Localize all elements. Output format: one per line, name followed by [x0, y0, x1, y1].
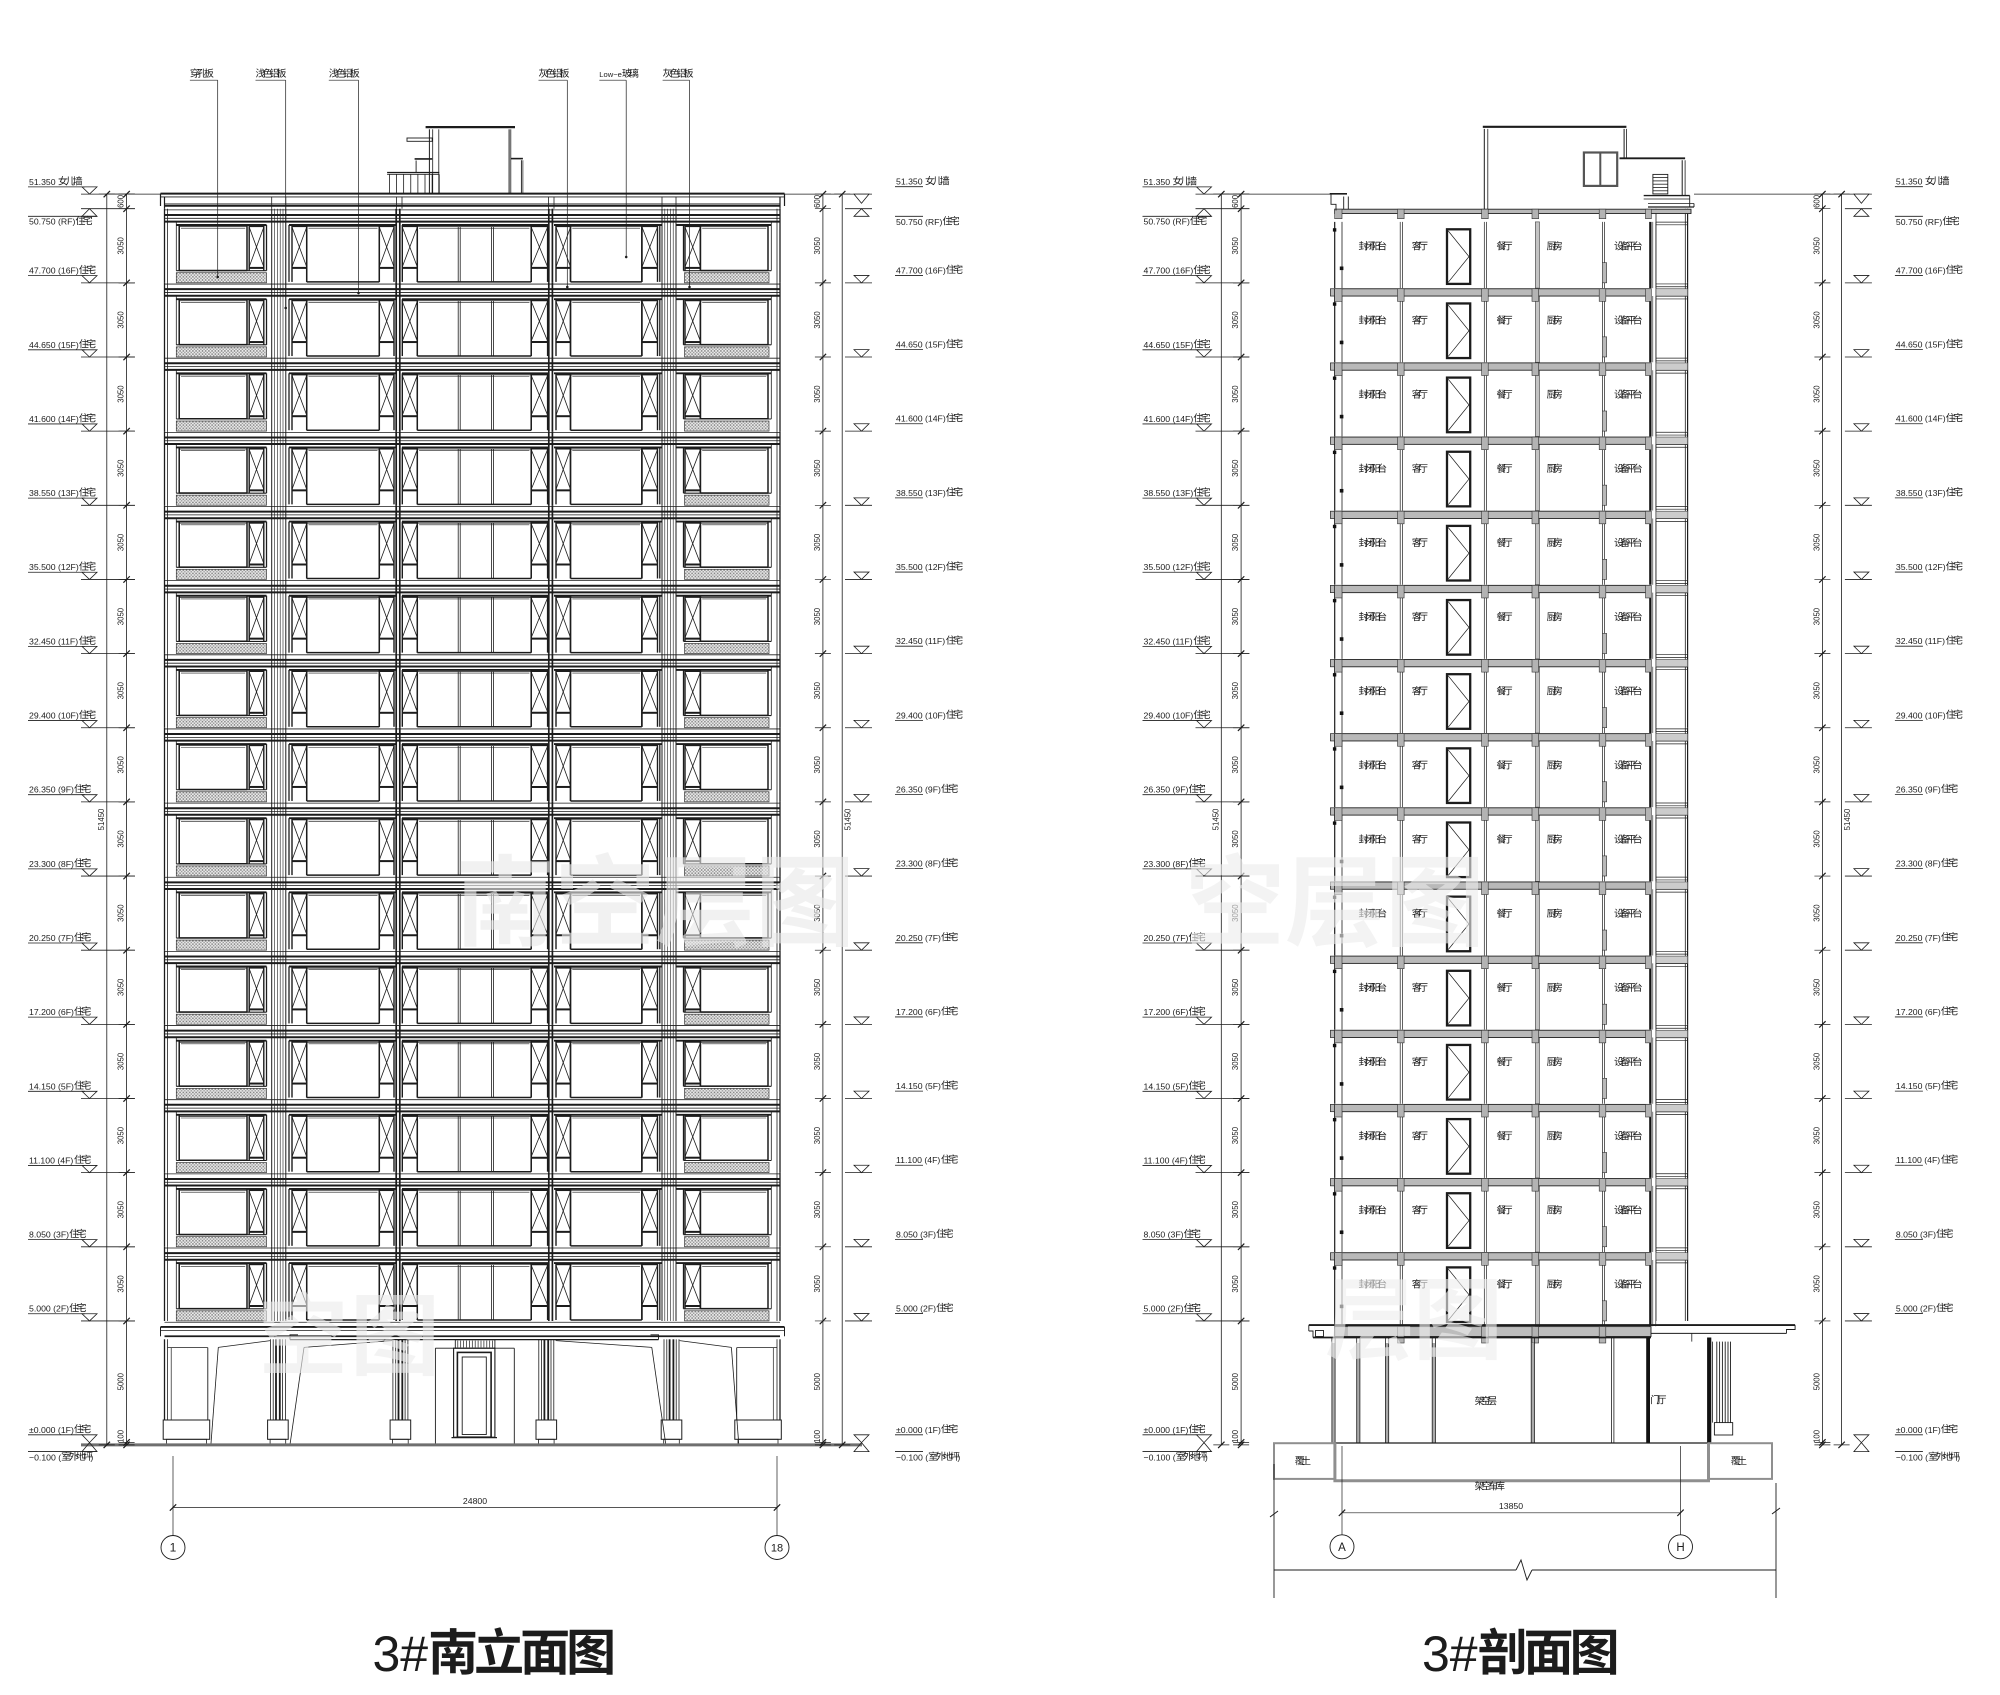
svg-text:3050: 3050 [1812, 459, 1821, 477]
svg-text:5000: 5000 [117, 1372, 126, 1390]
svg-text:600: 600 [1812, 194, 1821, 208]
svg-text:3050: 3050 [117, 385, 126, 403]
svg-text:14.150 (5F): 14.150 (5F) [1144, 1081, 1189, 1091]
svg-text:600: 600 [1231, 194, 1240, 208]
svg-text:3050: 3050 [813, 607, 822, 625]
svg-text:−0.100 (: −0.100 ( [1144, 1452, 1176, 1462]
svg-text:3050: 3050 [1812, 1200, 1821, 1218]
svg-text:3050: 3050 [117, 236, 126, 254]
svg-text:3050: 3050 [813, 1275, 822, 1293]
svg-text:3#: 3# [373, 1626, 429, 1682]
svg-text:17.200 (6F): 17.200 (6F) [29, 1007, 74, 1017]
svg-text:38.550 (13F): 38.550 (13F) [896, 488, 946, 498]
svg-text:3050: 3050 [1231, 236, 1240, 254]
svg-text:3050: 3050 [1231, 385, 1240, 403]
svg-text:5000: 5000 [1812, 1372, 1821, 1390]
svg-text:−0.100 (: −0.100 ( [1896, 1452, 1928, 1462]
svg-text:47.700 (16F): 47.700 (16F) [29, 266, 79, 276]
svg-text:±0.000 (1F): ±0.000 (1F) [1144, 1425, 1189, 1435]
svg-text:38.550 (13F): 38.550 (13F) [1896, 488, 1946, 498]
svg-text:44.650 (15F): 44.650 (15F) [29, 340, 79, 350]
svg-text:3050: 3050 [1812, 681, 1821, 699]
svg-text:3050: 3050 [1812, 607, 1821, 625]
svg-text:35.500 (12F): 35.500 (12F) [1896, 562, 1946, 572]
svg-text:11.100 (4F): 11.100 (4F) [896, 1155, 940, 1165]
svg-text:3050: 3050 [813, 978, 822, 996]
svg-text:): ) [90, 1452, 93, 1462]
svg-text:3050: 3050 [117, 904, 126, 922]
svg-text:3050: 3050 [1812, 236, 1821, 254]
svg-text:±0.000 (1F): ±0.000 (1F) [896, 1425, 941, 1435]
svg-text:3050: 3050 [117, 830, 126, 848]
svg-text:20.250 (7F): 20.250 (7F) [896, 933, 941, 943]
svg-text:32.450 (11F): 32.450 (11F) [1144, 636, 1193, 646]
svg-text:3050: 3050 [813, 1052, 822, 1070]
svg-text:±0.000 (1F): ±0.000 (1F) [1896, 1425, 1941, 1435]
svg-text:14.150 (5F): 14.150 (5F) [896, 1081, 941, 1091]
svg-text:50.750 (RF): 50.750 (RF) [1144, 217, 1190, 227]
svg-text:51.350: 51.350 [1896, 177, 1923, 187]
svg-text:3050: 3050 [117, 756, 126, 774]
svg-text:38.550 (13F): 38.550 (13F) [1144, 488, 1194, 498]
svg-text:3050: 3050 [1812, 533, 1821, 551]
svg-text:23.300 (8F): 23.300 (8F) [29, 859, 74, 869]
svg-text:3050: 3050 [1231, 681, 1240, 699]
svg-text:44.650 (15F): 44.650 (15F) [1144, 340, 1194, 350]
svg-text:51450: 51450 [1843, 808, 1852, 830]
svg-text:18: 18 [771, 1543, 783, 1555]
svg-text:50.750 (RF): 50.750 (RF) [29, 217, 75, 227]
svg-text:1: 1 [170, 1541, 177, 1555]
svg-text:29.400 (10F): 29.400 (10F) [1144, 711, 1194, 721]
svg-text:23.300 (8F): 23.300 (8F) [1144, 859, 1189, 869]
svg-text:13850: 13850 [1499, 1501, 1523, 1511]
svg-text:11.100 (4F): 11.100 (4F) [1896, 1155, 1940, 1165]
svg-text:3050: 3050 [117, 459, 126, 477]
svg-text:3050: 3050 [1812, 830, 1821, 848]
svg-text:3050: 3050 [117, 1126, 126, 1144]
svg-text:A: A [1338, 1542, 1346, 1554]
svg-text:26.350 (9F): 26.350 (9F) [896, 784, 941, 794]
svg-text:3050: 3050 [117, 311, 126, 329]
svg-text:5000: 5000 [813, 1372, 822, 1390]
svg-text:): ) [1957, 1452, 1960, 1462]
svg-text:17.200 (6F): 17.200 (6F) [1144, 1007, 1189, 1017]
svg-text:5.000 (2F): 5.000 (2F) [29, 1304, 69, 1314]
svg-text:3050: 3050 [117, 978, 126, 996]
svg-text:20.250 (7F): 20.250 (7F) [29, 933, 74, 943]
svg-text:50.750 (RF): 50.750 (RF) [1896, 217, 1942, 227]
svg-text:14.150 (5F): 14.150 (5F) [29, 1081, 74, 1091]
svg-text:3050: 3050 [1231, 756, 1240, 774]
svg-text:3050: 3050 [1231, 311, 1240, 329]
svg-text:3050: 3050 [813, 1200, 822, 1218]
svg-text:3050: 3050 [117, 1052, 126, 1070]
svg-text:3050: 3050 [1812, 385, 1821, 403]
svg-text:100: 100 [1231, 1429, 1240, 1443]
svg-text:100: 100 [813, 1429, 822, 1443]
svg-text:3050: 3050 [1812, 978, 1821, 996]
svg-text:100: 100 [1812, 1429, 1821, 1443]
svg-text:47.700 (16F): 47.700 (16F) [1896, 265, 1946, 275]
svg-text:41.600 (14F): 41.600 (14F) [1896, 414, 1946, 424]
svg-text:17.200 (6F): 17.200 (6F) [1896, 1007, 1941, 1017]
svg-text:41.600 (14F): 41.600 (14F) [1144, 414, 1194, 424]
svg-text:47.700 (16F): 47.700 (16F) [896, 265, 946, 275]
svg-text:3050: 3050 [813, 681, 822, 699]
svg-text:11.100 (4F): 11.100 (4F) [29, 1155, 73, 1165]
svg-text:5.000 (2F): 5.000 (2F) [896, 1304, 936, 1314]
svg-text:32.450 (11F): 32.450 (11F) [896, 636, 945, 646]
svg-text:8.050 (3F): 8.050 (3F) [1896, 1229, 1936, 1239]
svg-text:23.300 (8F): 23.300 (8F) [1896, 859, 1941, 869]
svg-text:24800: 24800 [463, 1496, 487, 1506]
svg-text:600: 600 [813, 194, 822, 208]
svg-text:26.350 (9F): 26.350 (9F) [1144, 785, 1189, 795]
svg-text:): ) [1205, 1452, 1208, 1462]
svg-text:3050: 3050 [813, 533, 822, 551]
svg-text:3050: 3050 [813, 459, 822, 477]
svg-text:20.250 (7F): 20.250 (7F) [1144, 933, 1189, 943]
svg-text:26.350 (9F): 26.350 (9F) [29, 785, 74, 795]
svg-text:17.200 (6F): 17.200 (6F) [896, 1007, 941, 1017]
svg-text:3050: 3050 [813, 236, 822, 254]
svg-text:20.250 (7F): 20.250 (7F) [1896, 933, 1941, 943]
svg-text:51450: 51450 [97, 808, 106, 830]
svg-text:3050: 3050 [813, 756, 822, 774]
svg-text:26.350 (9F): 26.350 (9F) [1896, 784, 1941, 794]
svg-text:3050: 3050 [117, 533, 126, 551]
svg-text:51450: 51450 [1211, 808, 1220, 830]
svg-text:51.350: 51.350 [1144, 177, 1171, 187]
svg-text:3050: 3050 [1812, 904, 1821, 922]
svg-text:3050: 3050 [1231, 1200, 1240, 1218]
svg-text:100: 100 [117, 1429, 126, 1443]
svg-text:44.650 (15F): 44.650 (15F) [896, 340, 946, 350]
svg-text:8.050 (3F): 8.050 (3F) [1144, 1230, 1184, 1240]
svg-text:50.750 (RF): 50.750 (RF) [896, 217, 942, 227]
svg-text:3050: 3050 [1231, 978, 1240, 996]
svg-text:3050: 3050 [1231, 607, 1240, 625]
svg-text:−0.100 (: −0.100 ( [29, 1452, 61, 1462]
svg-text:3050: 3050 [1231, 533, 1240, 551]
svg-text:3050: 3050 [1231, 830, 1240, 848]
svg-text:3050: 3050 [1812, 756, 1821, 774]
svg-text:Low−e: Low−e [599, 70, 622, 79]
svg-text:29.400 (10F): 29.400 (10F) [29, 711, 79, 721]
svg-text:3050: 3050 [813, 830, 822, 848]
svg-text:35.500 (12F): 35.500 (12F) [29, 562, 79, 572]
svg-text:3050: 3050 [117, 607, 126, 625]
svg-text:23.300 (8F): 23.300 (8F) [896, 859, 941, 869]
svg-text:3050: 3050 [1231, 1052, 1240, 1070]
svg-text:29.400 (10F): 29.400 (10F) [896, 710, 946, 720]
svg-text:11.100 (4F): 11.100 (4F) [1144, 1155, 1188, 1165]
svg-text:3050: 3050 [1812, 1052, 1821, 1070]
svg-text:3050: 3050 [1812, 1126, 1821, 1144]
svg-text:3050: 3050 [1231, 1275, 1240, 1293]
svg-text:600: 600 [117, 194, 126, 208]
svg-text:3050: 3050 [117, 1275, 126, 1293]
svg-text:51.350: 51.350 [896, 177, 923, 187]
svg-text:3050: 3050 [1812, 311, 1821, 329]
svg-text:5.000 (2F): 5.000 (2F) [1144, 1304, 1184, 1314]
svg-text:47.700 (16F): 47.700 (16F) [1144, 266, 1194, 276]
svg-text:): ) [957, 1452, 960, 1462]
svg-text:35.500 (12F): 35.500 (12F) [1144, 562, 1194, 572]
svg-text:51450: 51450 [844, 808, 853, 830]
svg-text:−0.100 (: −0.100 ( [896, 1452, 928, 1462]
svg-text:3050: 3050 [1812, 1275, 1821, 1293]
svg-text:3#: 3# [1422, 1626, 1478, 1682]
svg-text:3050: 3050 [813, 385, 822, 403]
svg-text:44.650 (15F): 44.650 (15F) [1896, 340, 1946, 350]
svg-text:41.600 (14F): 41.600 (14F) [896, 414, 946, 424]
svg-text:8.050 (3F): 8.050 (3F) [896, 1229, 936, 1239]
svg-text:35.500 (12F): 35.500 (12F) [896, 562, 946, 572]
svg-text:5000: 5000 [1231, 1372, 1240, 1390]
svg-text:41.600 (14F): 41.600 (14F) [29, 414, 79, 424]
svg-text:3050: 3050 [117, 1200, 126, 1218]
svg-text:H: H [1676, 1542, 1684, 1554]
svg-text:32.450 (11F): 32.450 (11F) [29, 636, 78, 646]
svg-text:5.000 (2F): 5.000 (2F) [1896, 1304, 1936, 1314]
svg-text:32.450 (11F): 32.450 (11F) [1896, 636, 1945, 646]
svg-text:38.550 (13F): 38.550 (13F) [29, 488, 79, 498]
svg-text:3050: 3050 [1231, 459, 1240, 477]
svg-text:±0.000 (1F): ±0.000 (1F) [29, 1425, 74, 1435]
svg-text:14.150 (5F): 14.150 (5F) [1896, 1081, 1941, 1091]
svg-text:51.350: 51.350 [29, 177, 56, 187]
svg-text:8.050 (3F): 8.050 (3F) [29, 1230, 69, 1240]
svg-text:3050: 3050 [813, 311, 822, 329]
svg-text:3050: 3050 [1231, 1126, 1240, 1144]
svg-text:3050: 3050 [117, 681, 126, 699]
svg-text:3050: 3050 [813, 1126, 822, 1144]
svg-text:29.400 (10F): 29.400 (10F) [1896, 710, 1946, 720]
